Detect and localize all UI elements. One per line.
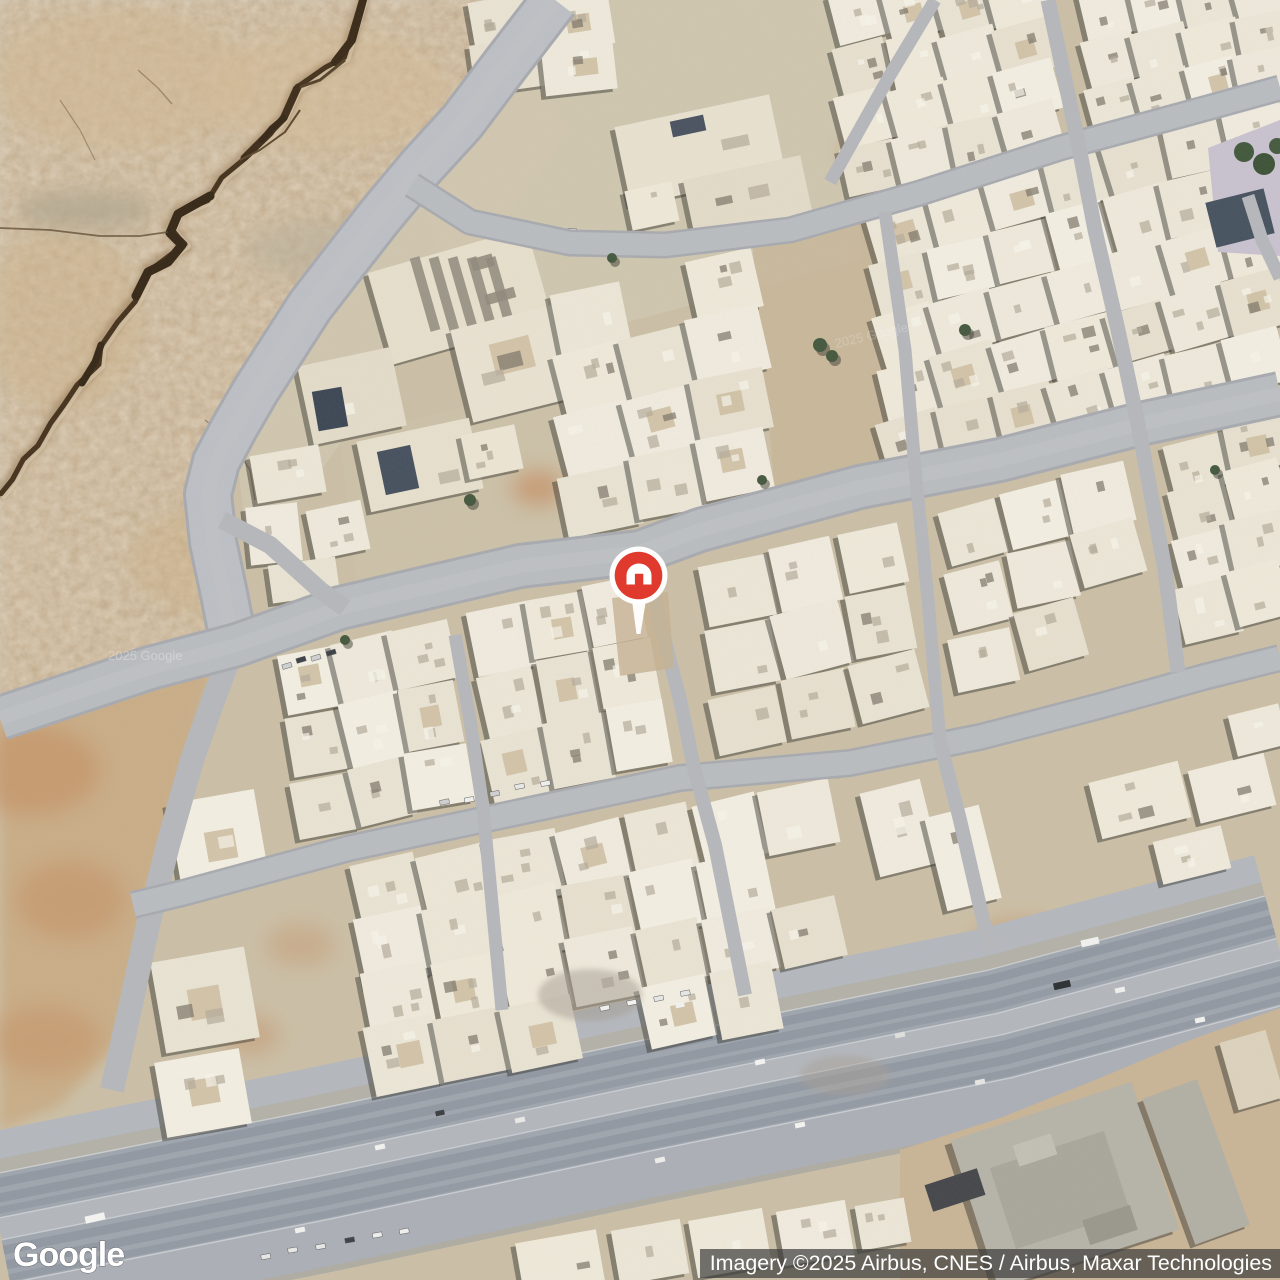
svg-text:Google: Google [13,1236,124,1274]
svg-text:Imagery ©2025 Airbus, CNES / A: Imagery ©2025 Airbus, CNES / Airbus, Max… [710,1251,1272,1275]
